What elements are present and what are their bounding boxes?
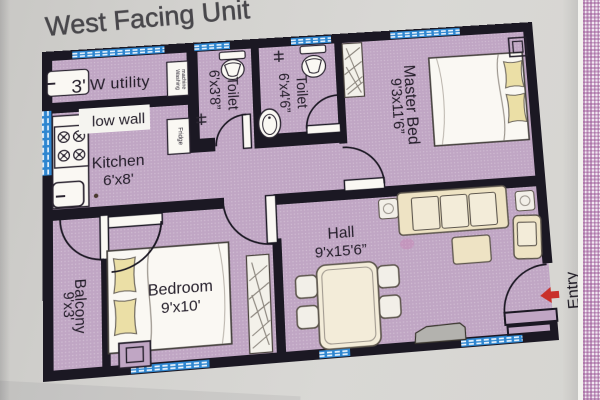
svg-text:Washing: Washing xyxy=(174,69,181,90)
svg-text:3': 3' xyxy=(71,76,86,97)
svg-text:Kitchen: Kitchen xyxy=(92,152,145,173)
svg-text:6'x8': 6'x8' xyxy=(103,171,134,189)
svg-text:9'x3': 9'x3' xyxy=(61,291,77,321)
svg-text:Toilet: Toilet xyxy=(223,76,240,110)
svg-text:9'x10': 9'x10' xyxy=(161,298,201,318)
svg-text:Toilet: Toilet xyxy=(292,75,310,109)
svg-text:6'x3'8”: 6'x3'8” xyxy=(205,69,223,110)
svg-text:machine: machine xyxy=(180,69,187,89)
svg-text:Hall: Hall xyxy=(327,224,355,243)
svg-text:Fridge: Fridge xyxy=(176,127,184,146)
svg-text:6'x4'6”: 6'x4'6” xyxy=(275,73,293,114)
svg-text:9'3x11'6”: 9'3x11'6” xyxy=(387,78,406,135)
